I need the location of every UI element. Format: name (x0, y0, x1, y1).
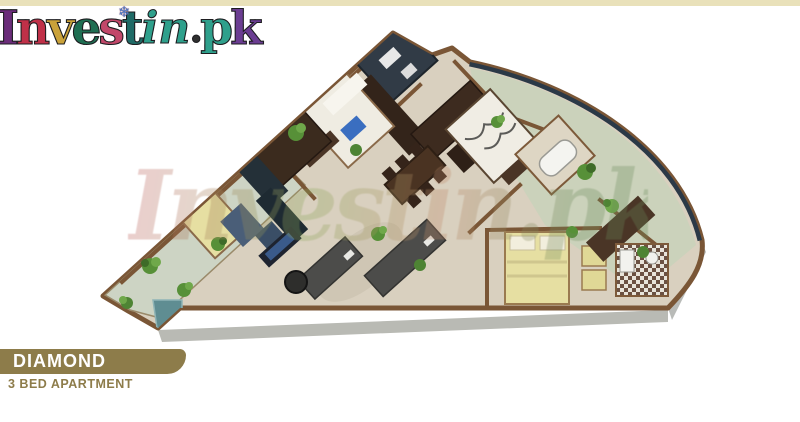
logo-letter: e (71, 4, 98, 54)
building-front-ledge (158, 310, 668, 342)
logo-letter: . (189, 4, 200, 54)
snowflake-ornament-icon: ❄ (118, 3, 131, 21)
logo-letter: i (141, 4, 158, 54)
investin-logo: I n v e s t i n . p k ❄ (0, 4, 260, 58)
plan-name-label: DIAMOND (0, 349, 106, 374)
logo-letter: I (0, 4, 16, 54)
plan-type-label: 3 BED APARTMENT (8, 377, 133, 391)
glass-floor-panel (153, 300, 182, 328)
logo-letter: n (157, 4, 189, 54)
logo-letter: v (47, 4, 71, 54)
logo-letter: p (200, 4, 230, 54)
plan-name-band: DIAMOND (0, 349, 186, 374)
logo-letter: n (16, 4, 47, 54)
logo-letter: k (230, 4, 260, 54)
